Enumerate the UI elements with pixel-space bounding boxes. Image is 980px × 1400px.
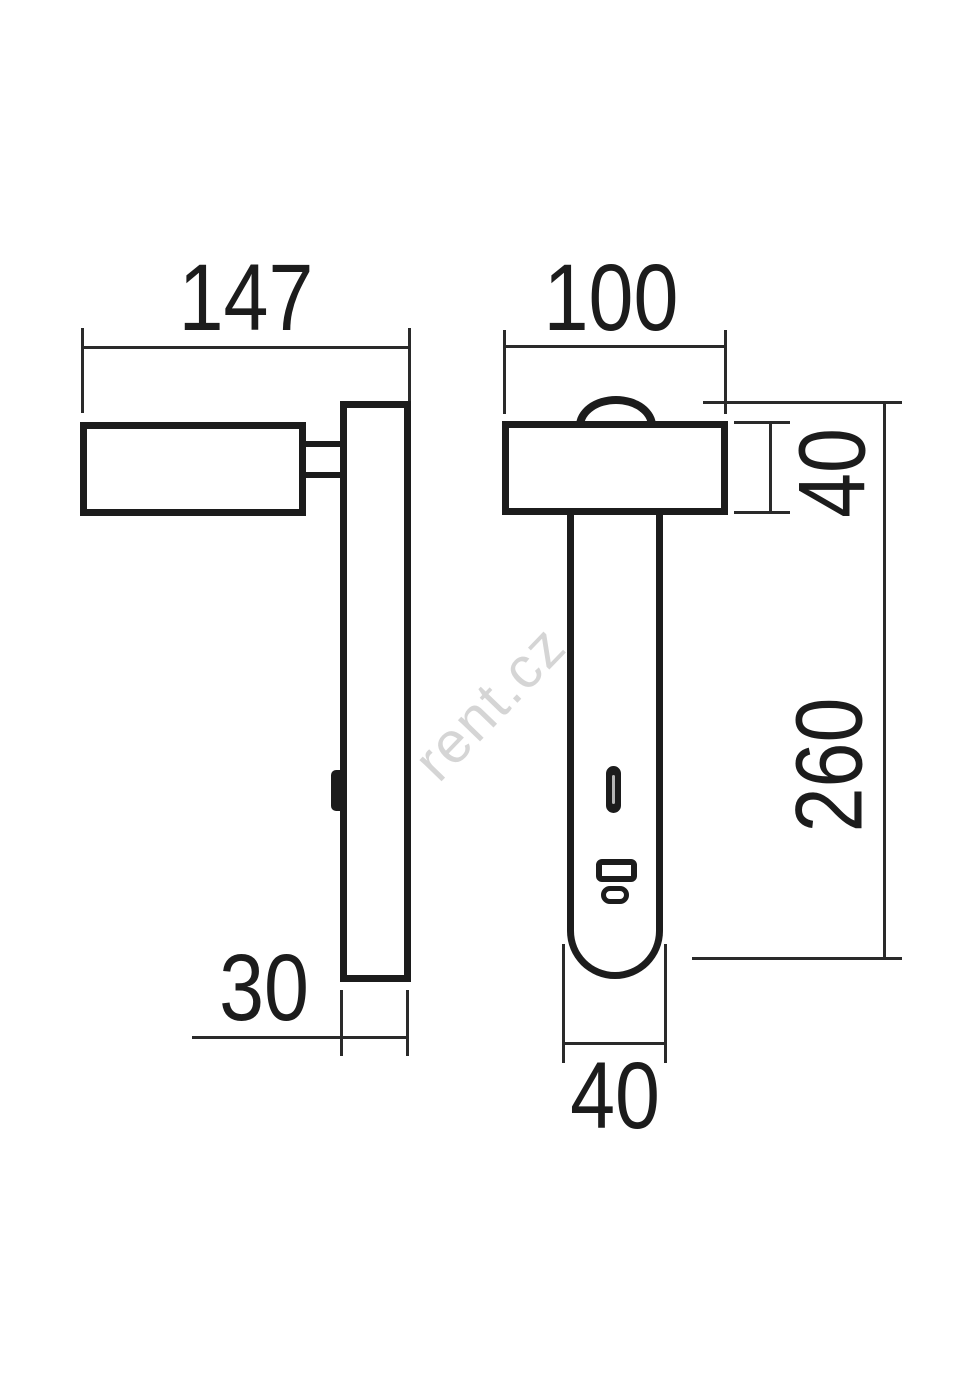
watermark-text: rent.cz xyxy=(401,612,580,794)
dim-100-label: 100 xyxy=(544,251,679,346)
dim-40body-witness-left xyxy=(562,944,565,1063)
indicator-slot-front xyxy=(601,886,629,904)
dim-40body-witness-right xyxy=(664,944,667,1063)
dim-260-line xyxy=(883,401,886,960)
dim-40head-witness-top xyxy=(734,421,790,424)
pivot-arm-side xyxy=(303,441,343,478)
usb-c-port xyxy=(606,766,621,813)
rocker-switch-front xyxy=(596,859,637,882)
dim-147-label: 147 xyxy=(179,251,314,346)
dim-40head-line xyxy=(769,421,772,514)
lamp-head-side xyxy=(80,422,306,516)
dim-260-witness-top xyxy=(703,401,902,404)
usb-c-inner-slot xyxy=(612,775,615,804)
dim-40body-label: 40 xyxy=(570,1049,660,1144)
dim-30-witness-right xyxy=(406,990,409,1056)
dim-100-witness-left xyxy=(503,330,506,414)
lamp-head-front xyxy=(502,421,728,515)
dim-260-witness-bottom xyxy=(692,957,902,960)
dim-40head-label: 40 xyxy=(786,428,881,518)
dim-260-label: 260 xyxy=(783,698,878,833)
technical-drawing-canvas: rent.cz 147 30 xyxy=(0,0,980,1400)
dim-30-witness-left xyxy=(340,990,343,1056)
dim-30-label: 30 xyxy=(219,941,309,1036)
body-strip-front xyxy=(567,515,663,979)
wall-plate-side xyxy=(340,401,411,982)
dim-147-witness-left xyxy=(81,328,84,413)
switch-knob-side xyxy=(331,770,345,811)
